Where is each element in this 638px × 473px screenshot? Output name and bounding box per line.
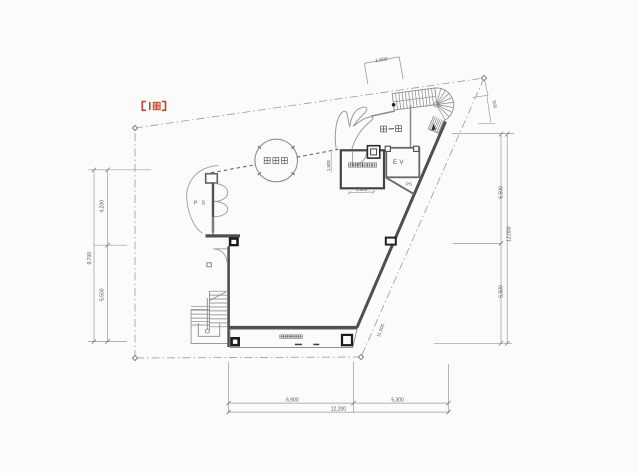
svg-text:5,500: 5,500: [499, 285, 505, 298]
svg-text:PS: PS: [406, 182, 412, 187]
svg-text:5,300: 5,300: [391, 397, 404, 403]
svg-text:6,900: 6,900: [286, 397, 299, 403]
svg-text:1,500: 1,500: [326, 159, 331, 171]
svg-text:12,000: 12,000: [506, 226, 512, 242]
svg-text:P S: P S: [194, 201, 206, 207]
svg-text:12,200: 12,200: [331, 407, 347, 413]
svg-text:5,500: 5,500: [99, 288, 105, 301]
svg-text:4,200: 4,200: [99, 200, 105, 213]
svg-text:1,800: 1,800: [356, 187, 368, 192]
svg-text:9,700: 9,700: [87, 252, 93, 265]
svg-text:EV: EV: [393, 159, 406, 166]
svg-text:6,500: 6,500: [499, 186, 505, 199]
